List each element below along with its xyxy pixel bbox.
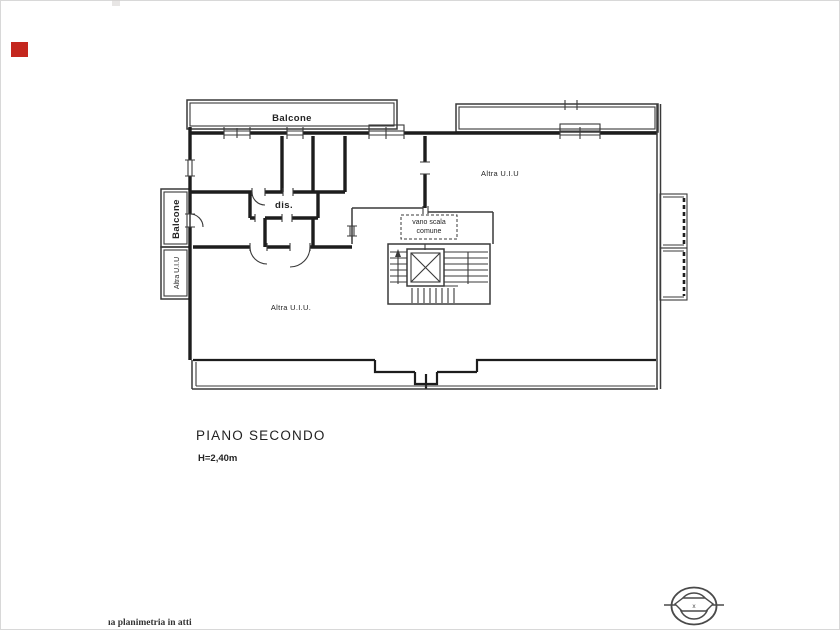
footer-note: ıa planimetria in atti [108, 618, 192, 628]
scan-smudge [112, 0, 120, 6]
red-marker [11, 42, 28, 57]
left-strip-label: Altra U.I.U [174, 257, 181, 289]
balconies-right [660, 194, 687, 300]
stamp: x [664, 588, 724, 625]
balcony-left-label: Balcone [171, 199, 182, 239]
stair-treads-right [444, 252, 488, 284]
terrace-window-tick [565, 100, 577, 110]
scanned-floorplan-page: Balcone Balcone Altra U.I.U [0, 0, 840, 630]
stair-direction-arrow [395, 249, 401, 257]
stairwell-label-line2: comune [417, 228, 442, 235]
stair-landing: vano scala comune [347, 206, 493, 244]
balcony-left: Balcone Altra U.I.U [161, 189, 190, 299]
room-right-label: Altra U.I.U [481, 169, 519, 178]
balcony-top: Balcone [187, 100, 397, 129]
height-note: H=2,40m [198, 453, 237, 464]
room-lower-label: Altra U.I.U. [271, 303, 311, 312]
floor-plan-drawing: Balcone Balcone Altra U.I.U [0, 0, 840, 630]
elevator-shaft [407, 244, 444, 286]
window-symbols [185, 124, 600, 251]
balcony-top-label: Balcone [272, 113, 312, 124]
stair-treads-bottom [407, 286, 458, 303]
interior-walls [190, 136, 352, 267]
disimpegno-label: dis. [275, 200, 293, 211]
terrace-bottom [192, 360, 658, 389]
caption: PIANO SECONDO H=2,40m [196, 428, 326, 464]
terrace-top-right [456, 100, 658, 132]
stairwell-label-line1: vano scala [412, 219, 446, 226]
stairwell [388, 244, 490, 304]
floor-title: PIANO SECONDO [196, 428, 326, 443]
